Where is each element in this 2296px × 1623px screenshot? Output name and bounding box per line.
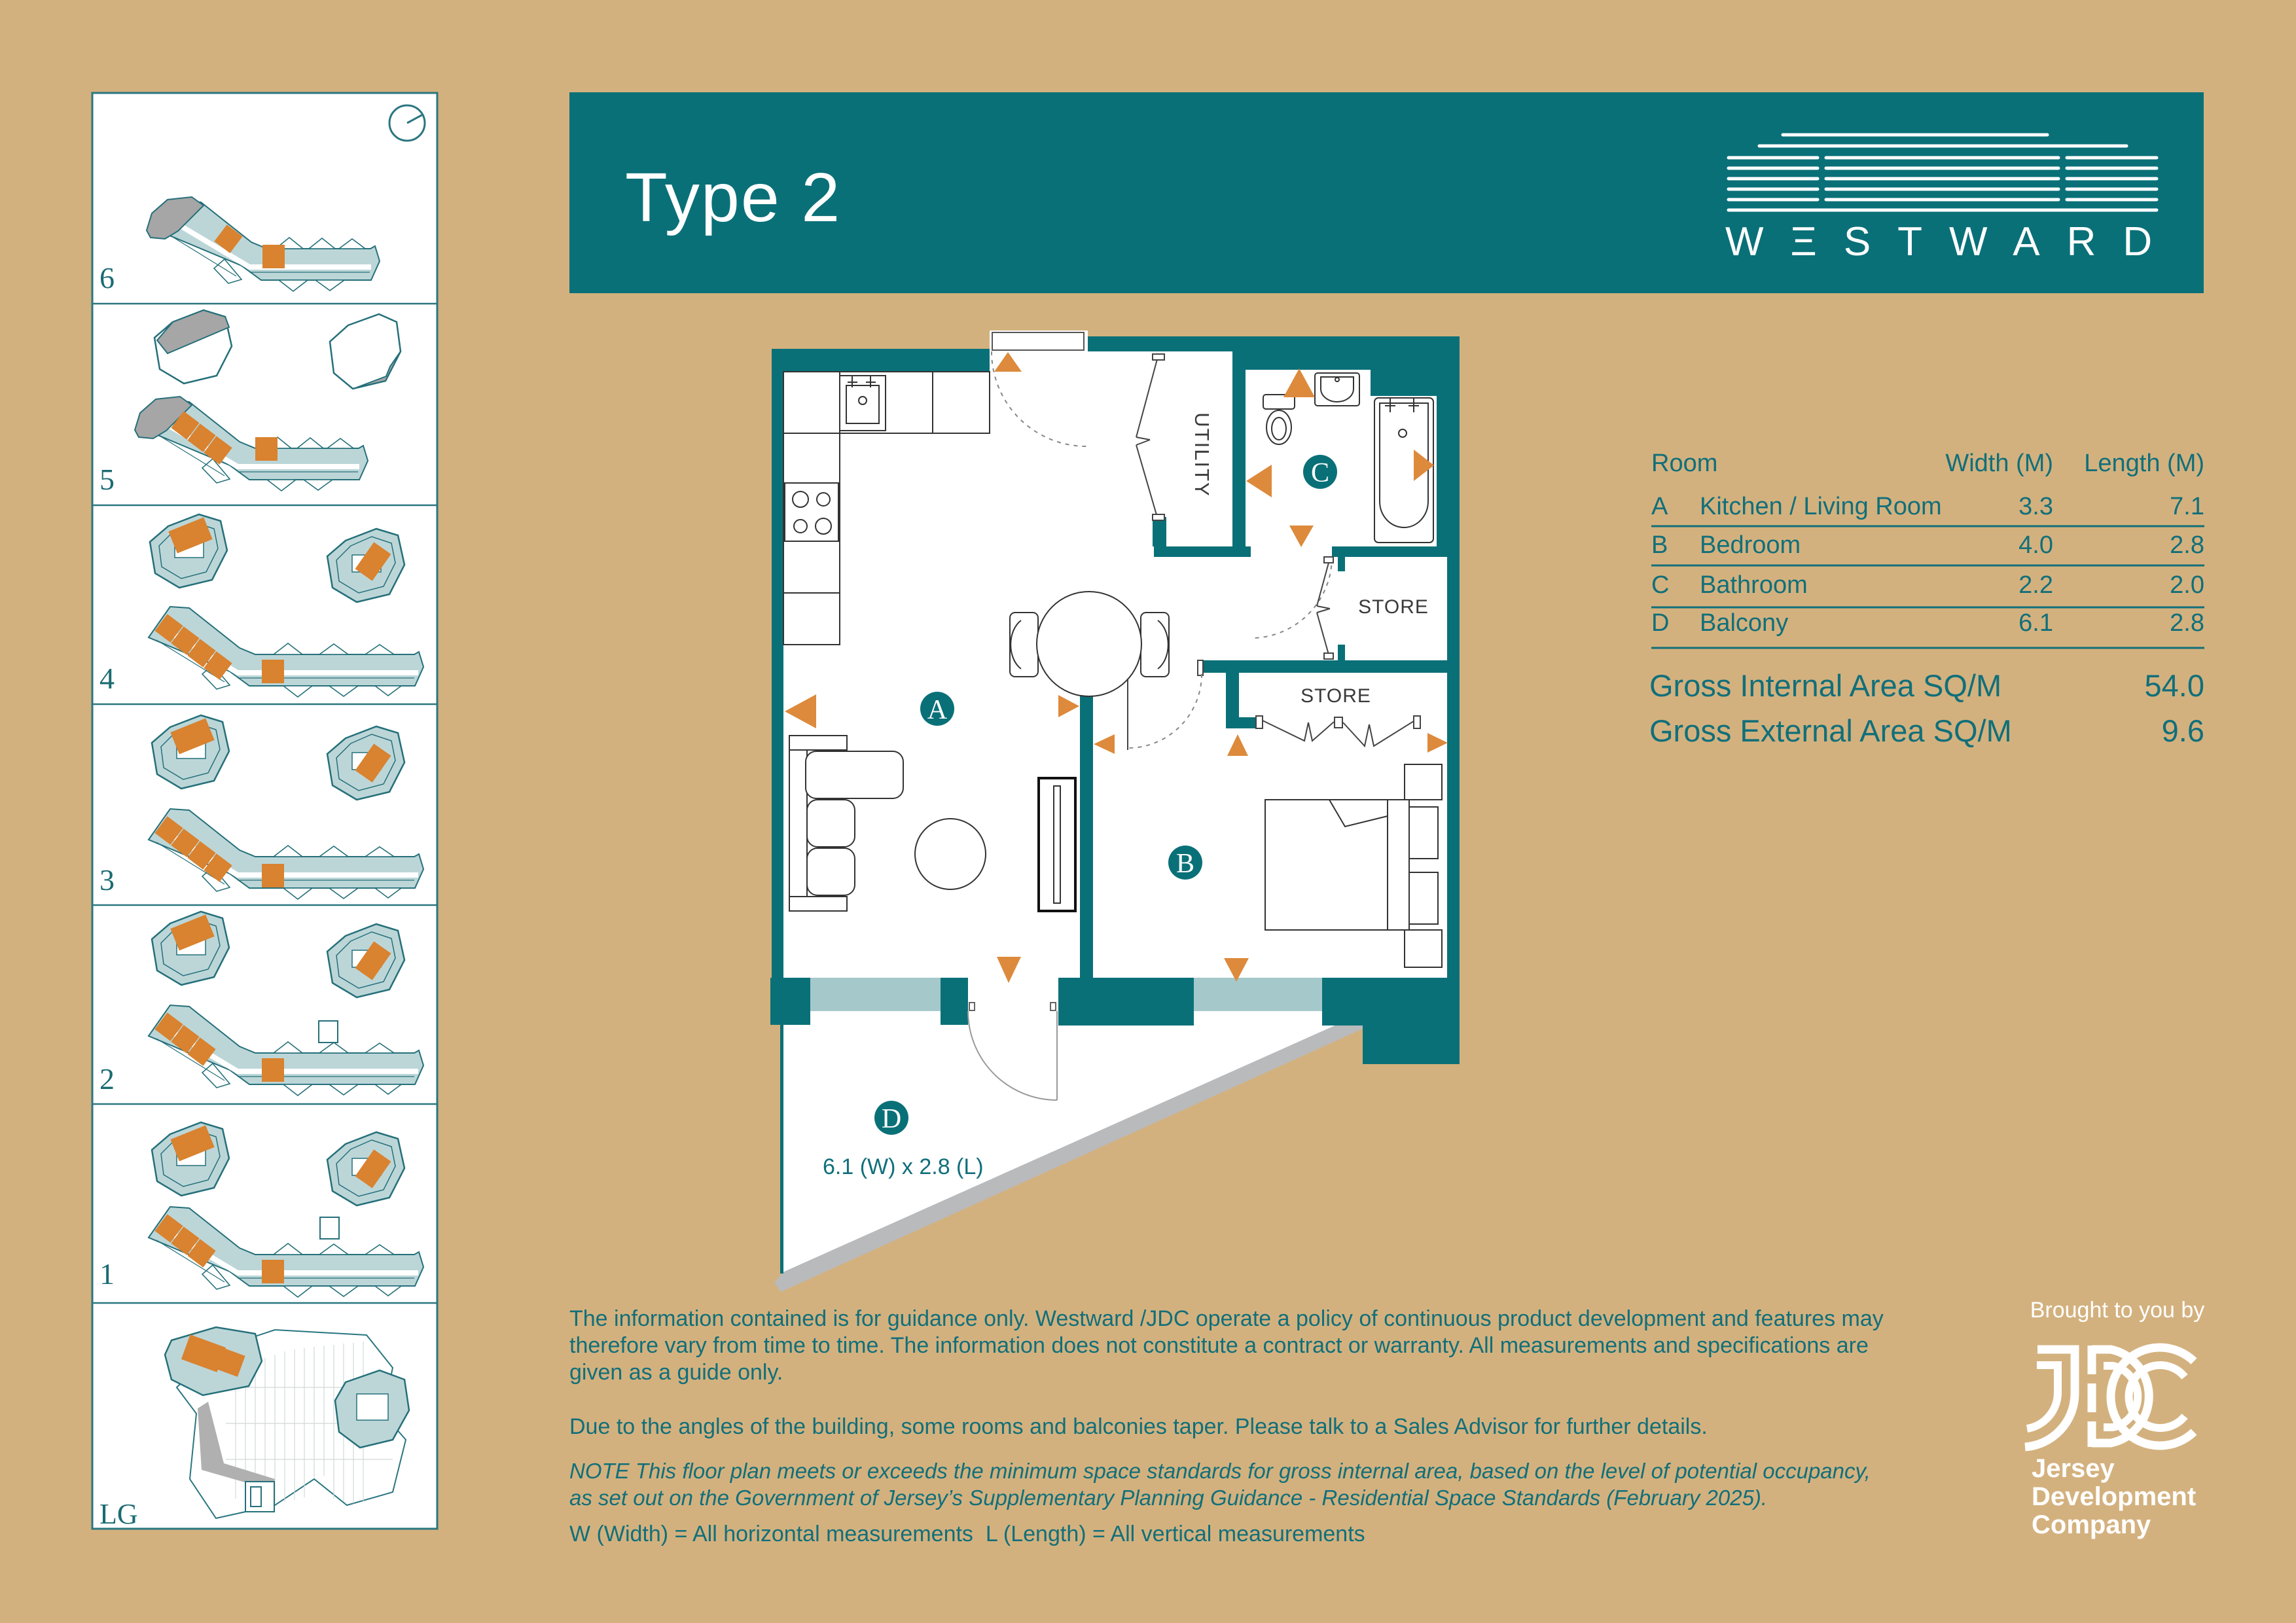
svg-text:NOTE This floor plan meets or: NOTE This floor plan meets or exceeds th…	[569, 1459, 1871, 1483]
svg-text:given as a guide only.: given as a guide only.	[569, 1360, 783, 1385]
svg-text:1: 1	[99, 1257, 115, 1291]
svg-text:6: 6	[99, 261, 115, 294]
svg-text:therefore vary from time to ti: therefore vary from time to time. The in…	[569, 1333, 1869, 1358]
svg-text:Type 2: Type 2	[625, 159, 841, 236]
svg-text:The information contained is f: The information contained is for guidanc…	[569, 1306, 1884, 1331]
svg-text:C: C	[1651, 571, 1669, 599]
svg-text:W (Width) = All horizontal mea: W (Width) = All horizontal measurements …	[569, 1522, 1365, 1546]
svg-text:4: 4	[99, 662, 115, 695]
svg-text:Gross External Area SQ/M: Gross External Area SQ/M	[1649, 713, 2012, 748]
svg-text:2: 2	[99, 1062, 115, 1096]
svg-text:5: 5	[99, 463, 115, 496]
svg-text:Company: Company	[2032, 1510, 2151, 1539]
svg-text:Gross Internal Area SQ/M: Gross Internal Area SQ/M	[1649, 668, 2001, 703]
svg-text:STORE: STORE	[1300, 685, 1371, 707]
svg-text:Due to the angles of the build: Due to the angles of the building, some …	[569, 1414, 1708, 1439]
svg-text:D: D	[1651, 609, 1669, 637]
svg-text:A: A	[927, 695, 948, 725]
svg-text:Length (M): Length (M)	[2084, 450, 2204, 477]
svg-text:2.0: 2.0	[2170, 571, 2204, 599]
svg-text:3.3: 3.3	[2018, 493, 2053, 520]
svg-text:Development: Development	[2032, 1482, 2196, 1511]
svg-text:Kitchen / Living Room: Kitchen / Living Room	[1700, 493, 1942, 520]
svg-text:Room: Room	[1651, 450, 1717, 477]
svg-text:6.1 (W) x 2.8 (L): 6.1 (W) x 2.8 (L)	[823, 1154, 984, 1179]
svg-text:Balcony: Balcony	[1700, 609, 1788, 637]
svg-text:Bathroom: Bathroom	[1700, 571, 1808, 599]
svg-text:B: B	[1651, 531, 1668, 559]
svg-text:as set out on the Government o: as set out on the Government of Jersey’s…	[569, 1486, 1767, 1510]
svg-text:4.0: 4.0	[2018, 531, 2053, 559]
svg-text:A: A	[1651, 493, 1668, 520]
svg-text:54.0: 54.0	[2145, 668, 2204, 703]
svg-text:3: 3	[99, 863, 115, 897]
svg-text:9.6: 9.6	[2162, 713, 2204, 748]
svg-text:STORE: STORE	[1358, 596, 1429, 618]
svg-text:2.8: 2.8	[2170, 531, 2204, 559]
svg-text:2.2: 2.2	[2018, 571, 2053, 599]
svg-text:2.8: 2.8	[2170, 609, 2204, 637]
svg-text:WΞSTWARD: WΞSTWARD	[1725, 219, 2179, 264]
svg-text:Brought to you by: Brought to you by	[2030, 1298, 2205, 1323]
svg-text:LG: LG	[99, 1498, 138, 1530]
svg-text:Jersey: Jersey	[2032, 1454, 2115, 1483]
svg-text:C: C	[1311, 458, 1329, 488]
svg-text:B: B	[1176, 849, 1194, 879]
svg-text:UTILITY: UTILITY	[1191, 412, 1213, 497]
svg-text:Bedroom: Bedroom	[1700, 531, 1801, 559]
svg-text:D: D	[882, 1104, 901, 1134]
svg-text:Width (M): Width (M)	[1945, 450, 2053, 477]
svg-text:6.1: 6.1	[2018, 609, 2053, 637]
svg-text:7.1: 7.1	[2170, 493, 2204, 520]
